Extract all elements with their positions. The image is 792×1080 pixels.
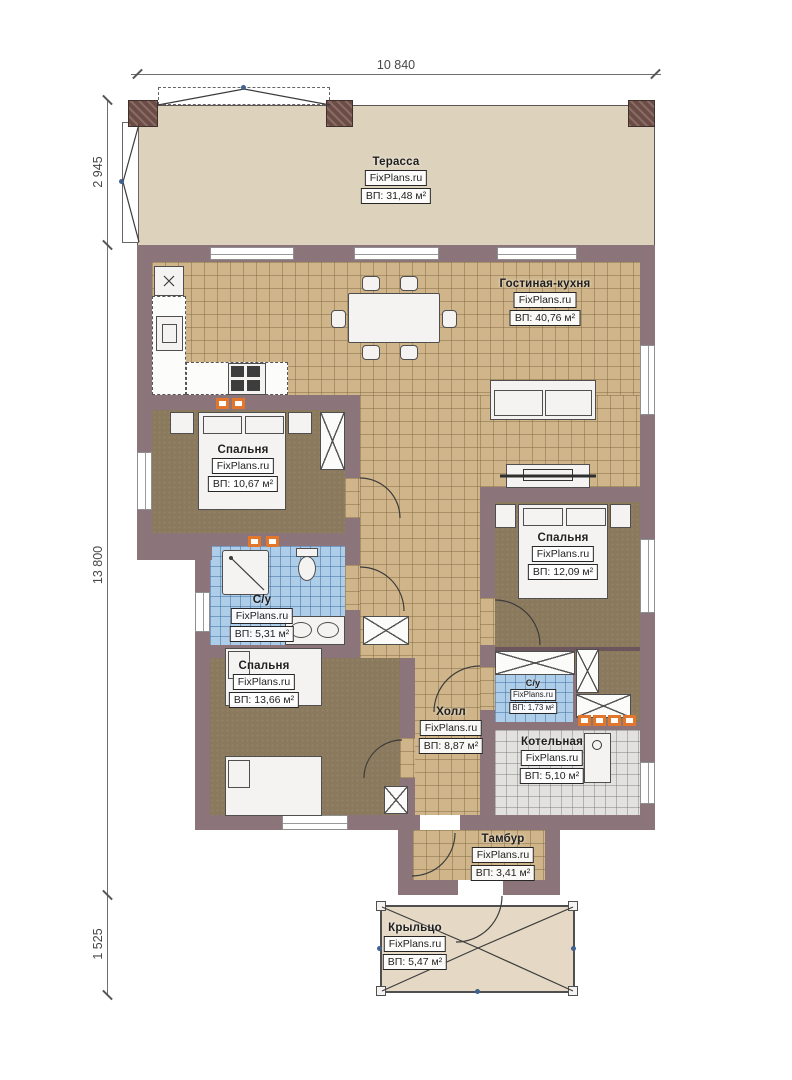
brand-watermark: FixPlans.ru: [420, 720, 483, 736]
room-label-tambour: Тамбур FixPlans.ru ВП: 3,41 м²: [471, 833, 535, 881]
pillow: [203, 416, 242, 434]
screen-node: [119, 179, 124, 184]
room-area: ВП: 31,48 м²: [361, 188, 431, 204]
brand-watermark: FixPlans.ru: [365, 170, 428, 186]
window: [640, 762, 655, 804]
wall: [640, 245, 655, 830]
terrace-column: [326, 100, 353, 127]
wall: [480, 502, 495, 598]
wall: [545, 815, 655, 830]
vent-marker: [248, 536, 261, 547]
room-name: Терасса: [361, 156, 431, 168]
nightstand: [170, 412, 194, 434]
room-area: ВП: 10,67 м²: [208, 476, 278, 492]
dim-label-terrace-depth: 2 945: [91, 156, 105, 187]
terrace-column: [128, 100, 158, 127]
room-area: ВП: 5,10 м²: [520, 768, 584, 784]
room-name: Спальня: [229, 660, 299, 672]
room-name: Холл: [419, 706, 483, 718]
room-name: С/у: [230, 594, 294, 606]
room-name: Гостиная-кухня: [500, 278, 591, 290]
door-opening: [400, 738, 415, 778]
porch-node: [475, 989, 480, 994]
wardrobe: [320, 412, 345, 470]
wall: [200, 533, 360, 546]
passage-hall-tambour: [420, 815, 460, 830]
room-area: ВП: 1,73 м²: [509, 702, 557, 714]
vent-marker: [608, 715, 621, 726]
room-label-terrace: Терасса FixPlans.ru ВП: 31,48 м²: [361, 156, 431, 204]
room-label-bedroom2: Спальня FixPlans.ru ВП: 12,09 м²: [528, 532, 598, 580]
kitchen-sink-basin: [162, 324, 177, 343]
brand-watermark: FixPlans.ru: [510, 689, 556, 701]
wall: [400, 658, 415, 738]
cabinet: [384, 786, 408, 814]
window: [640, 345, 655, 415]
room-label-hall: Холл FixPlans.ru ВП: 8,87 м²: [419, 706, 483, 754]
room-area: ВП: 13,66 м²: [229, 692, 299, 708]
room-label-living: Гостиная-кухня FixPlans.ru ВП: 40,76 м²: [500, 278, 591, 326]
dim-line-top: [131, 74, 661, 75]
room-label-bedroom1: Спальня FixPlans.ru ВП: 10,67 м²: [208, 444, 278, 492]
room-area: ВП: 5,31 м²: [230, 626, 294, 642]
door-opening: [345, 565, 360, 610]
vent-marker: [216, 398, 229, 409]
wall: [152, 395, 360, 410]
pillow: [245, 416, 284, 434]
vent-marker: [232, 398, 245, 409]
room-label-bath2: С/у FixPlans.ru ВП: 1,73 м²: [509, 678, 557, 714]
dining-table: [348, 293, 440, 343]
brand-watermark: FixPlans.ru: [233, 674, 296, 690]
window: [210, 247, 294, 260]
dim-label-width: 10 840: [377, 58, 415, 72]
brand-watermark: FixPlans.ru: [521, 750, 584, 766]
sofa-cushion: [545, 390, 592, 416]
porch-post: [376, 986, 386, 996]
chair: [400, 276, 418, 291]
wall: [460, 815, 555, 830]
brand-watermark: FixPlans.ru: [532, 546, 595, 562]
window: [640, 539, 655, 613]
door-opening: [480, 598, 495, 645]
nightstand: [610, 504, 631, 528]
room-label-bath1: С/у FixPlans.ru ВП: 5,31 м²: [230, 594, 294, 642]
door-gap-tambour-porch: [458, 880, 503, 895]
room-name: С/у: [509, 678, 557, 688]
wall: [480, 487, 640, 502]
terrace-column: [628, 100, 655, 127]
window: [137, 452, 152, 510]
vent-marker: [593, 715, 606, 726]
nightstand: [495, 504, 516, 528]
brand-watermark: FixPlans.ru: [384, 936, 447, 952]
brand-watermark: FixPlans.ru: [231, 608, 294, 624]
porch-post: [568, 986, 578, 996]
room-name: Крыльцо: [383, 922, 447, 934]
toilet-bowl: [298, 556, 316, 581]
room-area: ВП: 8,87 м²: [419, 738, 483, 754]
chair: [362, 276, 380, 291]
room-label-porch: Крыльцо FixPlans.ru ВП: 5,47 м²: [383, 922, 447, 970]
brand-watermark: FixPlans.ru: [514, 292, 577, 308]
room-name: Котельная: [520, 736, 584, 748]
vent-marker: [623, 715, 636, 726]
sink-basin: [317, 622, 339, 638]
wall: [345, 518, 360, 533]
vent-marker: [266, 536, 279, 547]
room-area: ВП: 40,76 м²: [510, 310, 580, 326]
boiler-dial: [592, 740, 602, 750]
nightstand: [288, 412, 312, 434]
room-name: Спальня: [528, 532, 598, 544]
window: [497, 247, 577, 260]
floor-plan-canvas: 10 840 2 945 13 800 1 525: [0, 0, 792, 1080]
wardrobe: [495, 651, 575, 675]
room-label-boiler: Котельная FixPlans.ru ВП: 5,10 м²: [520, 736, 584, 784]
dim-line-left: [107, 100, 108, 995]
stove-burner: [247, 366, 260, 377]
room-label-bedroom3: Спальня FixPlans.ru ВП: 13,66 м²: [229, 660, 299, 708]
dim-label-porch-depth: 1 525: [91, 928, 105, 959]
window: [282, 815, 348, 830]
window: [354, 247, 439, 260]
stove-burner: [231, 380, 244, 391]
pillow: [228, 760, 250, 788]
pillow: [523, 508, 563, 526]
porch-post: [376, 901, 386, 911]
wall: [345, 546, 360, 565]
door-opening: [480, 667, 495, 710]
wardrobe: [576, 649, 599, 693]
porch-node: [571, 946, 576, 951]
cabinet: [363, 616, 409, 645]
stove-burner: [247, 380, 260, 391]
shower: [222, 550, 269, 595]
wall: [398, 880, 458, 895]
room-area: ВП: 5,47 м²: [383, 954, 447, 970]
vent-marker: [578, 715, 591, 726]
porch-post: [568, 901, 578, 911]
room-area: ВП: 12,09 м²: [528, 564, 598, 580]
pergola-node: [241, 85, 246, 90]
wall: [195, 546, 210, 830]
brand-watermark: FixPlans.ru: [212, 458, 275, 474]
porch-node: [377, 946, 382, 951]
wall: [345, 410, 360, 478]
pillow: [566, 508, 606, 526]
room-area: ВП: 3,41 м²: [471, 865, 535, 881]
wall: [503, 880, 560, 895]
chair: [331, 310, 346, 328]
room-name: Спальня: [208, 444, 278, 456]
room-name: Тамбур: [471, 833, 535, 845]
chair: [442, 310, 457, 328]
stove-burner: [231, 366, 244, 377]
tv: [523, 469, 573, 481]
dim-label-house-depth: 13 800: [91, 546, 105, 584]
brand-watermark: FixPlans.ru: [472, 847, 535, 863]
fridge: [154, 266, 184, 296]
door-opening: [345, 478, 360, 518]
window: [195, 592, 210, 632]
sofa-cushion: [494, 390, 543, 416]
chair: [362, 345, 380, 360]
chair: [400, 345, 418, 360]
wall: [480, 645, 495, 667]
terrace-side-screen: [122, 122, 139, 243]
